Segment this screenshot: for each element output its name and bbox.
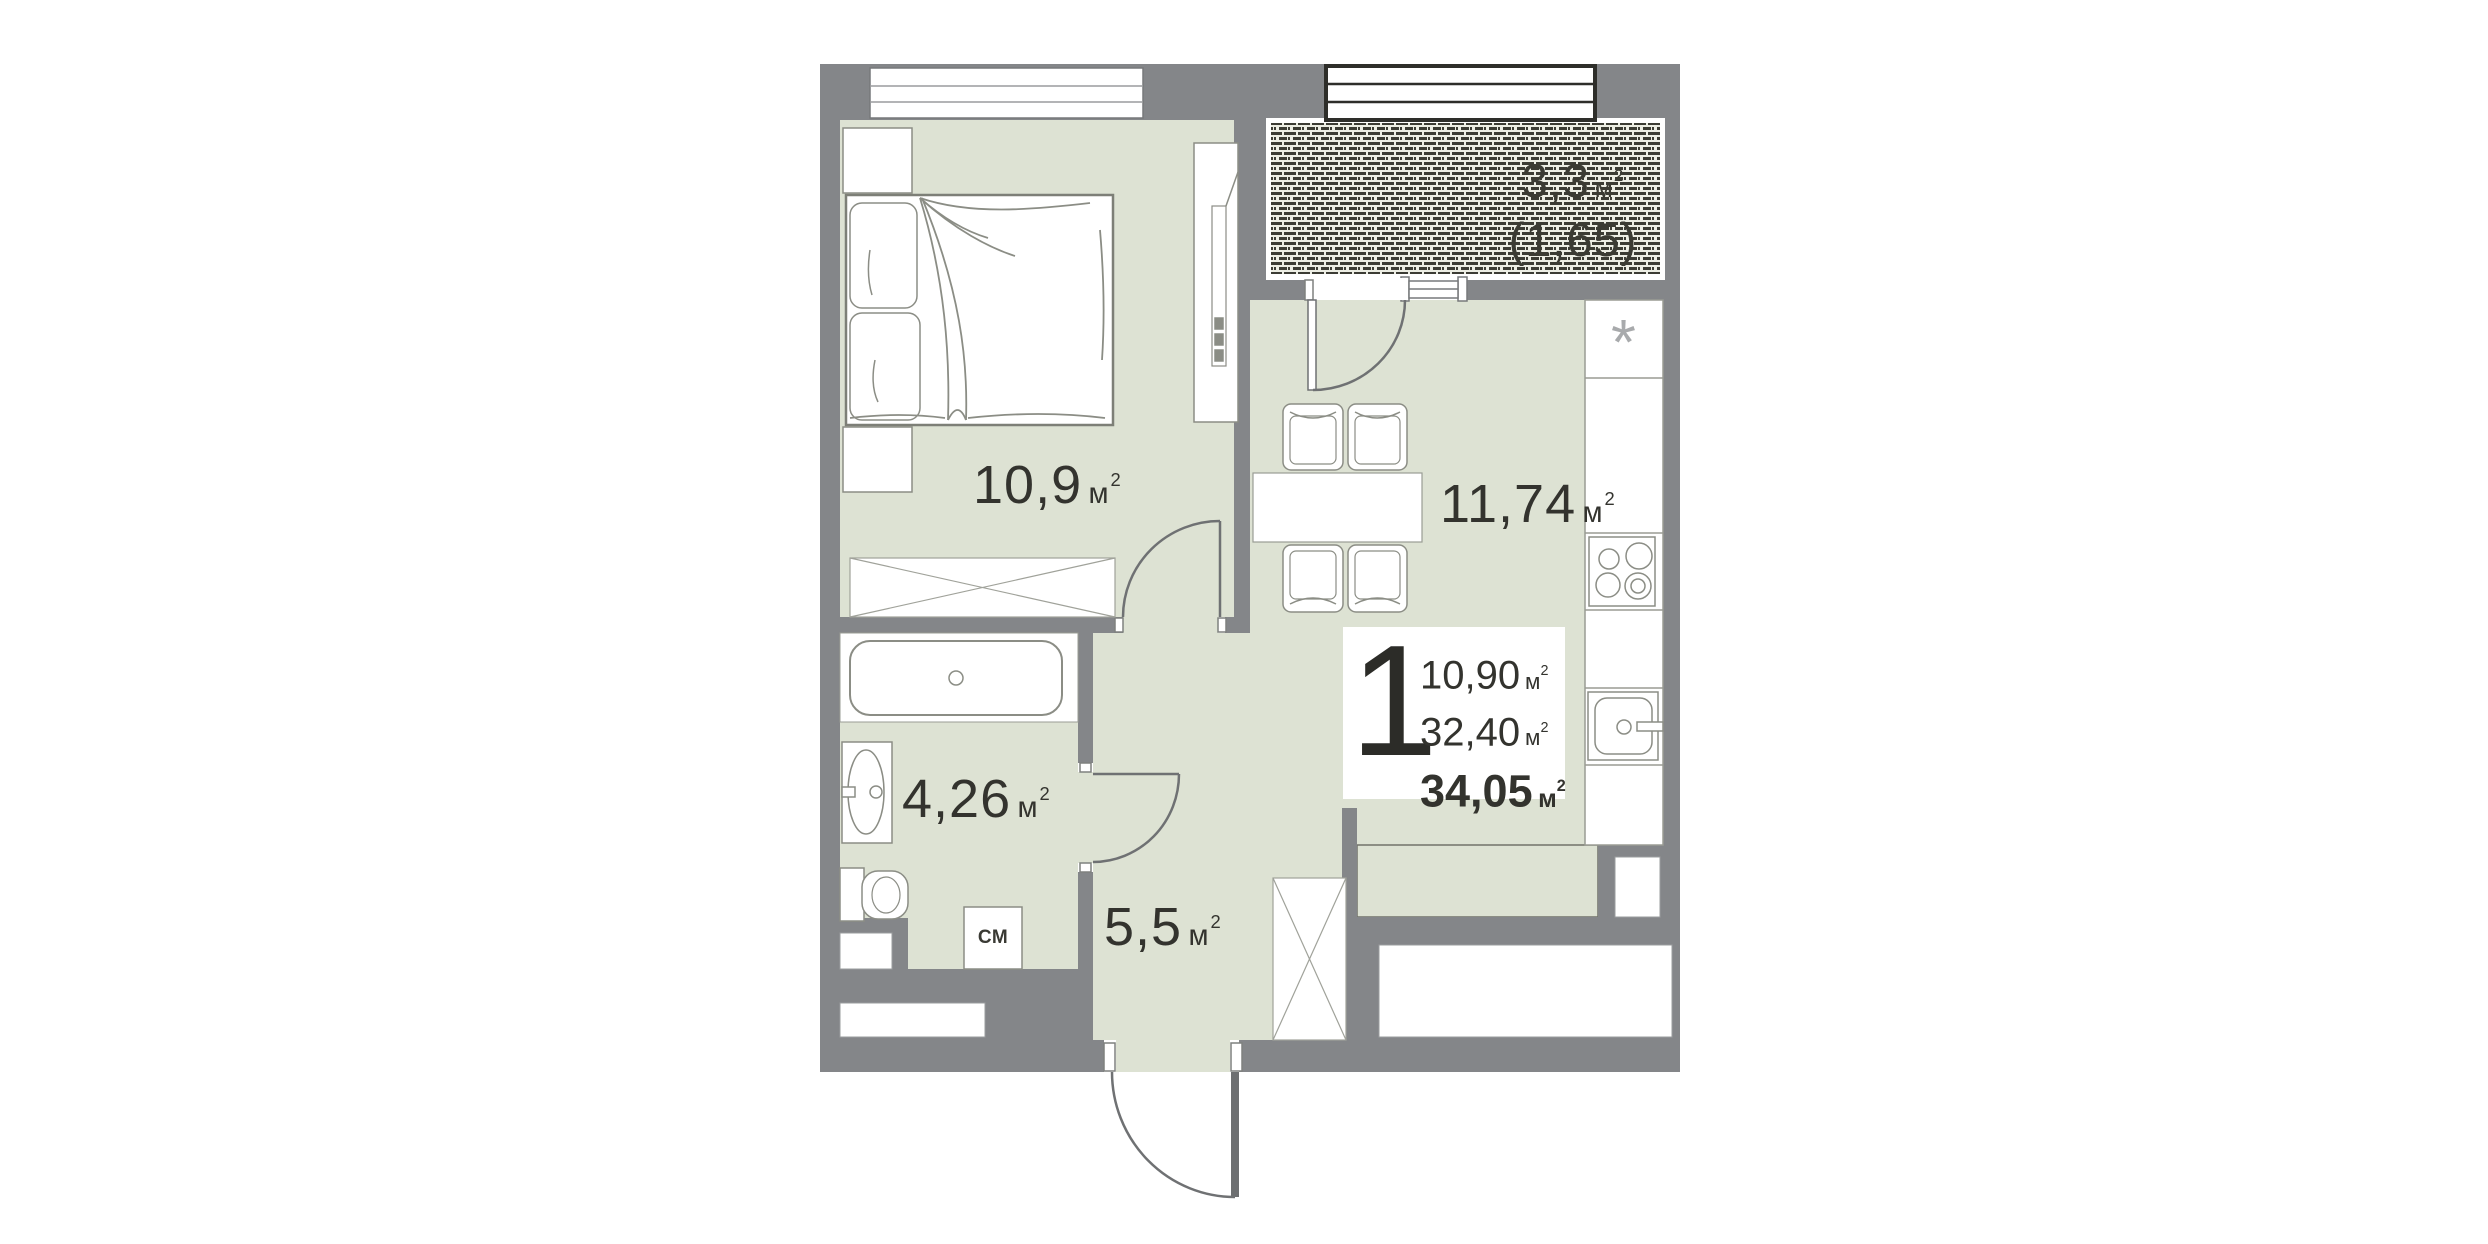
- bedroom-window: [870, 68, 1143, 118]
- bathtub-icon: [840, 633, 1078, 722]
- balcony-door-opening: [1313, 278, 1405, 300]
- kitchen-area-label: 11,74м2: [1440, 477, 1616, 531]
- floorplan-drawing: [0, 0, 2488, 1244]
- entrance-threshold: [1116, 1040, 1230, 1072]
- wall-balcony-door-right: [1467, 278, 1663, 300]
- chair-top-left: [1283, 404, 1343, 470]
- bedroom-wardrobe: [850, 558, 1115, 617]
- niche-right-small: [1615, 857, 1660, 917]
- total-area-row: 34,05м2: [1420, 761, 1566, 823]
- wall-bottom: [820, 1040, 1680, 1072]
- area-summary: 10,90м2 32,40м2 34,05м2: [1420, 648, 1566, 824]
- floorplan-canvas: 10,9м2 11,74м2 4,26м2 5,5м2 3,3м2 (1,65)…: [0, 0, 2488, 1244]
- niche-left-wide: [840, 1003, 985, 1037]
- entrance-door: [1112, 1072, 1235, 1197]
- dining-table: [1253, 473, 1422, 542]
- wall-bathroom-right-lower: [1078, 872, 1093, 1040]
- wall-bedroom-bottom-left: [840, 617, 1123, 633]
- bedroom-area-label: 10,9м2: [973, 458, 1122, 512]
- washing-machine-label: СМ: [964, 907, 1022, 969]
- kitchen-sink-icon: [1588, 692, 1663, 760]
- wall-bedroom-balcony: [1234, 64, 1266, 300]
- fridge-asterisk-marker: *: [1585, 302, 1663, 382]
- living-area-row: 10,90м2: [1420, 648, 1566, 705]
- balcony-coefficient: (1,65): [1458, 214, 1688, 266]
- balcony-area-label: 3,3м2 (1,65): [1458, 150, 1688, 266]
- chair-bottom-right: [1348, 545, 1407, 612]
- washbasin-icon: [842, 742, 892, 843]
- balcony-door-sidelight: [1401, 277, 1467, 301]
- balcony-window: [1326, 66, 1595, 120]
- wall-bathroom-right-upper: [1078, 633, 1093, 763]
- wall-bedroom-bottom-right: [1225, 617, 1250, 633]
- hallway-area-label: 5,5м2: [1104, 900, 1222, 954]
- wall-hall-kitchen-stub: [1342, 808, 1357, 878]
- tv-unit: [1194, 143, 1238, 422]
- apartment-area-row: 32,40м2: [1420, 705, 1566, 762]
- niche-bottom-large: [1379, 945, 1672, 1037]
- hallway-wardrobe: [1273, 878, 1346, 1040]
- nightstand-bottom: [843, 427, 912, 492]
- bathroom-door-opening: [1078, 772, 1093, 863]
- kitchen-floor-lower: [1357, 845, 1598, 917]
- bathroom-area-label: 4,26м2: [902, 772, 1051, 826]
- nightstand-top: [843, 128, 912, 193]
- bedroom-door-opening: [1123, 617, 1218, 633]
- bed: [846, 195, 1113, 425]
- balcony-area-value: 3,3м2: [1458, 150, 1688, 214]
- wall-balcony-door-left: [1266, 278, 1305, 300]
- stove-icon: [1589, 537, 1655, 606]
- chair-bottom-left: [1283, 545, 1343, 612]
- chair-top-right: [1348, 404, 1407, 470]
- niche-left-small: [840, 933, 892, 969]
- wall-right-of-wardrobe: [1346, 878, 1357, 1040]
- toilet-icon: [840, 868, 908, 921]
